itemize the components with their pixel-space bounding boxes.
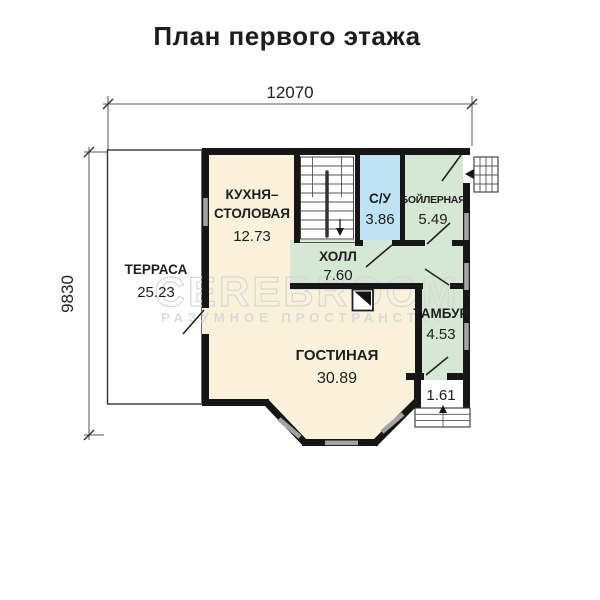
wall-left-upper (202, 148, 209, 308)
label-boiler: БОЙЛЕРНАЯ (401, 193, 466, 206)
window-tambour (464, 323, 469, 350)
area-hall: 7.60 (323, 267, 352, 284)
window-kitchen (203, 198, 208, 226)
wall-hall-top-a (355, 240, 363, 246)
entry-arrow-left-icon (465, 169, 474, 179)
label-hall: ХОЛЛ (319, 249, 357, 264)
label-living: ГОСТИНАЯ (296, 347, 379, 364)
watermark-slogan: РАЗУМНОЕ ПРОСТРАНСТВО (161, 310, 449, 325)
area-porch: 1.61 (426, 387, 455, 404)
label-tambour: ТАМБУР (413, 306, 468, 321)
area-boiler: 5.49 (418, 211, 447, 228)
wall-tambour-left (415, 283, 422, 380)
wall-hall-bottom-stub (450, 283, 463, 289)
wall-stair-left (294, 148, 300, 243)
wall-right-top (463, 148, 470, 153)
area-terrace: 25.23 (137, 284, 175, 301)
wall-hall-bottom (290, 283, 423, 289)
label-kitchen-2: СТОЛОВАЯ (214, 206, 290, 221)
fireplace-icon (353, 290, 374, 311)
wall-porch-top-right (447, 373, 470, 380)
wall-hall-top-c (452, 240, 463, 246)
wall-wc-left (355, 148, 360, 246)
label-terrace: ТЕРРАСА (125, 262, 188, 277)
dimension-left-label: 9830 (58, 275, 77, 313)
label-kitchen-1: КУХНЯ– (226, 187, 279, 202)
dimension-top-label: 12070 (266, 83, 313, 102)
stairs-interior (301, 157, 354, 239)
floor-plan-drawing: План первого этажа 12070 9830 CEREBROOM … (0, 0, 600, 600)
area-living: 30.89 (317, 370, 357, 387)
window-boiler (464, 213, 469, 240)
page-title: План первого этажа (153, 21, 420, 51)
wall-bottom-left (202, 399, 269, 406)
window-hall (464, 263, 469, 290)
wall-left-lower (202, 334, 209, 406)
area-kitchen: 12.73 (233, 228, 271, 245)
wall-hall-top-b (392, 240, 425, 246)
wall-top (202, 148, 470, 155)
area-wc: 3.86 (365, 211, 394, 228)
dimension-top: 12070 (103, 83, 477, 150)
floor-plan-page: План первого этажа 12070 9830 CEREBROOM … (0, 0, 600, 600)
dimension-left: 9830 (58, 147, 108, 440)
window-bay-bottom (325, 441, 358, 446)
area-tambour: 4.53 (426, 326, 455, 343)
label-wc: С/У (369, 191, 392, 206)
stairs-entrance (415, 405, 470, 427)
